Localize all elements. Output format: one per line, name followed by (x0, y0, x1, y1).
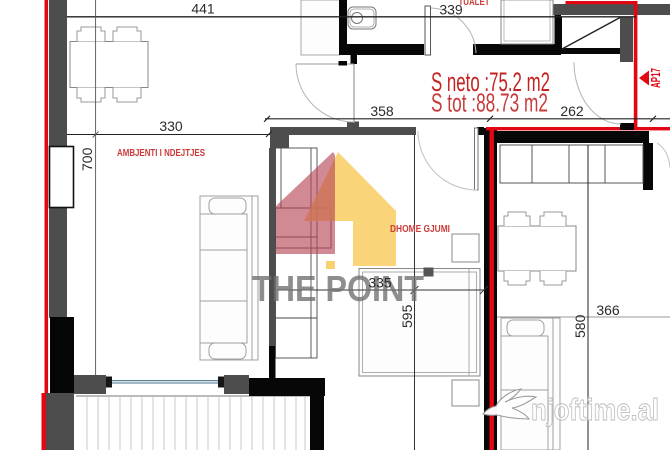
svg-text:441: 441 (191, 1, 215, 17)
svg-text:262: 262 (560, 103, 584, 119)
svg-text:DHOME GJUMI: DHOME GJUMI (390, 224, 450, 235)
svg-text:THE POINT: THE POINT (252, 268, 424, 309)
svg-text:580: 580 (572, 314, 588, 338)
svg-text:335: 335 (368, 275, 392, 291)
svg-text:njoftime.al: njoftime.al (531, 392, 659, 427)
svg-text:330: 330 (159, 118, 183, 134)
svg-text:595: 595 (399, 304, 415, 328)
svg-text:700: 700 (79, 147, 95, 171)
svg-text:S tot :88.73 m2: S tot :88.73 m2 (431, 88, 548, 118)
svg-text:AMBJENTI I NDEJTJES: AMBJENTI I NDEJTJES (117, 148, 205, 159)
svg-text:AP17: AP17 (648, 68, 663, 88)
svg-text:366: 366 (596, 302, 620, 318)
svg-text:TUALET: TUALET (459, 0, 490, 8)
svg-text:358: 358 (370, 103, 394, 119)
